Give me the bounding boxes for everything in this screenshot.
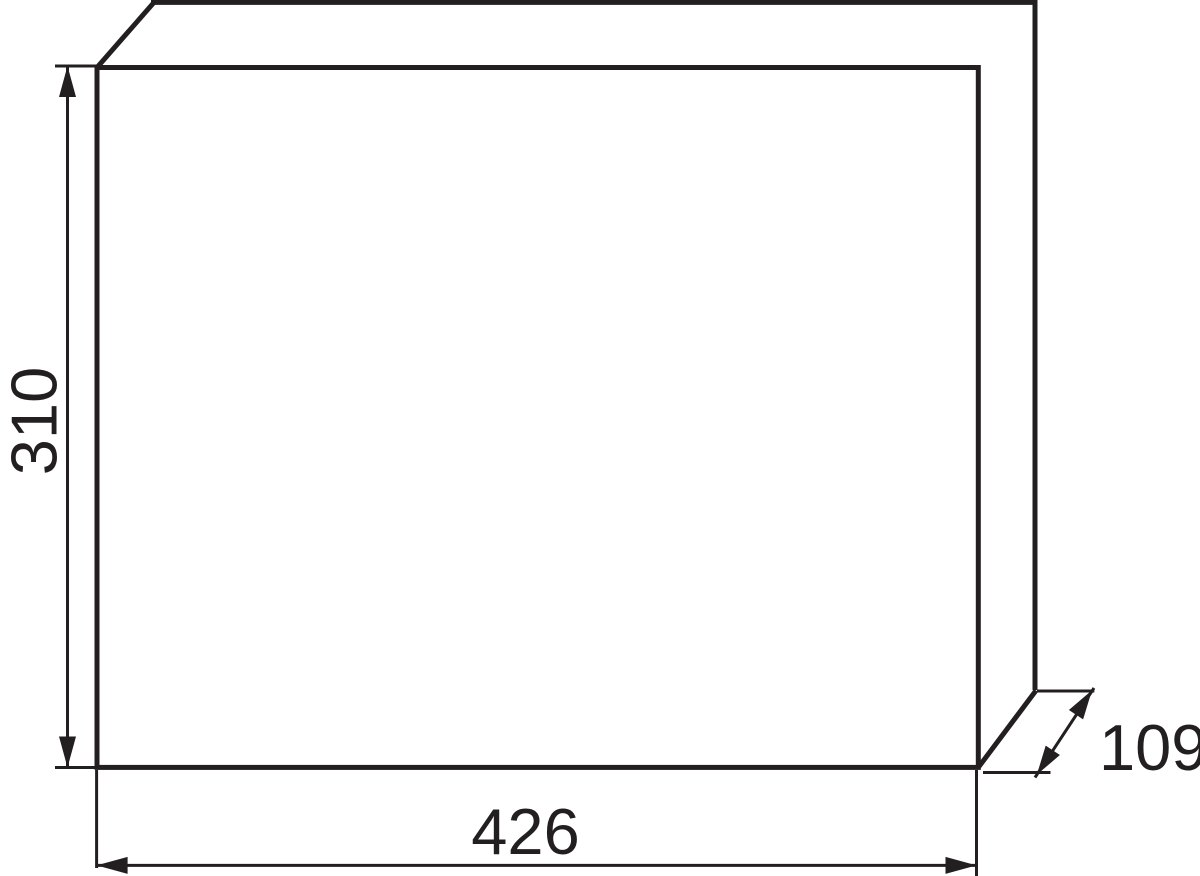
svg-text:109: 109 bbox=[1099, 711, 1200, 784]
svg-text:310: 310 bbox=[0, 367, 71, 475]
svg-text:426: 426 bbox=[471, 795, 579, 868]
